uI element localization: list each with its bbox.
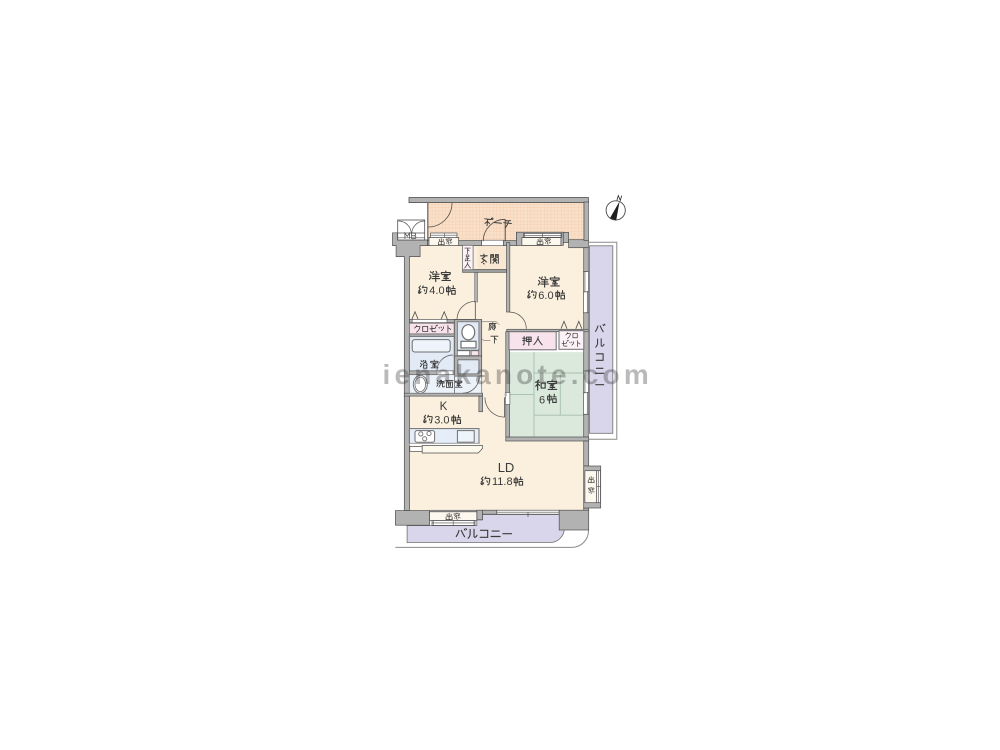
svg-text:6.0: 6.0 bbox=[538, 290, 553, 302]
svg-text:LD: LD bbox=[498, 460, 515, 475]
svg-text:6: 6 bbox=[539, 394, 545, 406]
svg-text:K: K bbox=[440, 401, 448, 413]
svg-text:4.0: 4.0 bbox=[429, 285, 444, 297]
svg-text:3.0: 3.0 bbox=[434, 415, 449, 427]
svg-text:ienakanote.com: ienakanote.com bbox=[383, 359, 653, 390]
svg-text:11.8: 11.8 bbox=[492, 476, 513, 488]
